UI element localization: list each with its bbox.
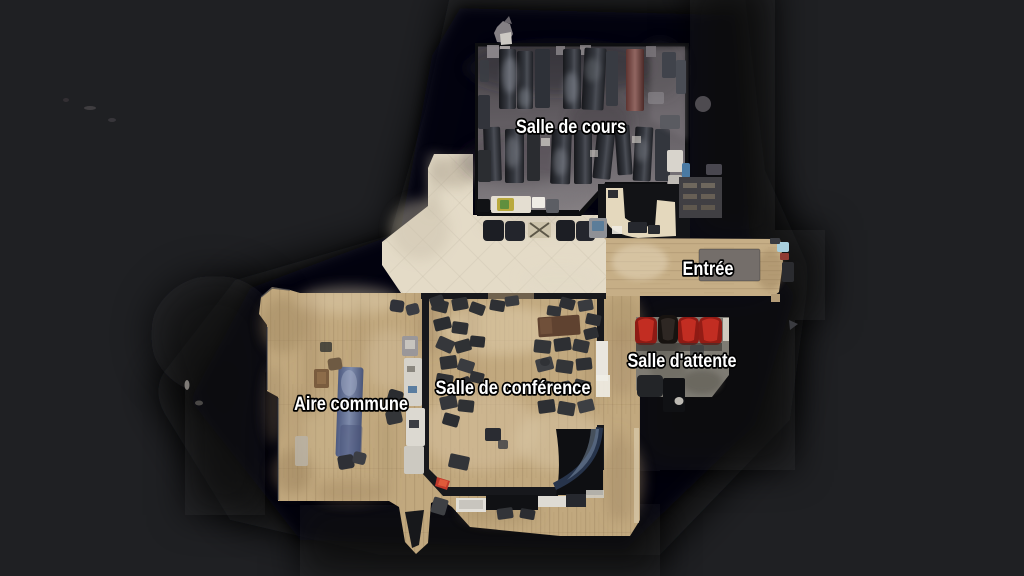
svg-text:Salle de conférence: Salle de conférence [436,378,591,399]
svg-text:Salle d'attente: Salle d'attente [628,351,737,372]
svg-text:Entrée: Entrée [683,259,734,280]
svg-text:Aire commune: Aire commune [294,394,408,415]
svg-text:Salle de cours: Salle de cours [516,117,626,138]
